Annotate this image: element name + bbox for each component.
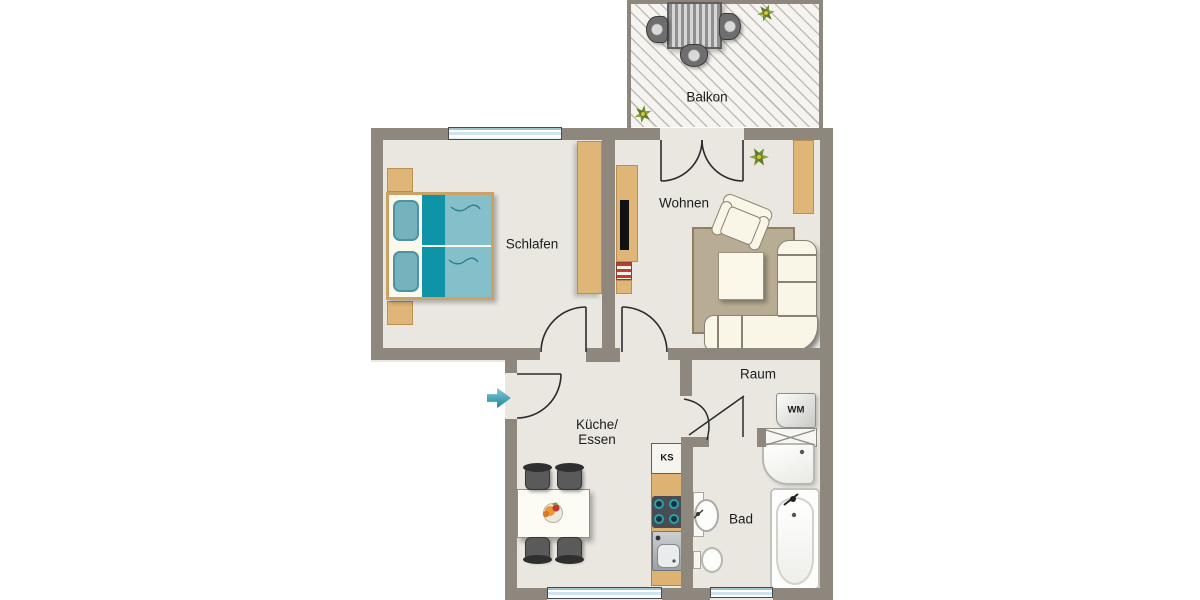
coffee-table [718,252,764,300]
sofa-seam [778,254,816,256]
wall-bottom-2 [662,588,710,600]
washing-machine-label: WM [788,405,805,416]
sofa-seam [778,315,816,317]
wall-kitchen-raum [680,358,692,396]
bed-pillow-bottom [393,251,419,292]
wall-bad-left [681,437,693,588]
wall-kitchen-left-top [505,348,517,373]
bed-divider [389,245,491,247]
balcony-label: Balkon [686,90,727,105]
bathtub-basin [776,497,814,585]
toilet-tank [693,551,701,569]
burner [654,499,664,509]
nightstand-top [387,168,413,192]
sofa-seam [778,281,816,283]
sofa-bottom-arm [704,315,818,352]
kitchen-sink-bowl [657,544,680,568]
kueche-label-line1: Küche/ [576,417,618,432]
bad-label: Bad [729,512,753,527]
fridge-label: KS [660,453,673,464]
double-bed [386,192,494,300]
burner [669,499,679,509]
bathtub [770,488,820,590]
fruit-bowl [543,503,563,523]
kueche-label: Küche/ Essen [576,417,618,447]
balcony-chair-right [719,13,741,40]
wall-top-mid [562,128,660,140]
window-schlafen [448,127,562,140]
sofa-seam [717,316,719,351]
kitchen-sink-unit [652,531,683,571]
wall-bottom-3 [773,588,833,600]
stove [652,496,683,528]
bed-pillow-top [393,200,419,241]
kueche-label-line2: Essen [576,432,618,447]
floor-plan: Balkon Schlafen Wohnen [0,0,1200,600]
window-kueche [547,587,662,599]
balcony-chair-bottom [680,44,708,67]
dining-chair-back [523,555,552,564]
balcony-table [667,2,722,49]
bath-sink [694,499,719,532]
nightstand-bottom [387,301,413,325]
balcony-railing-left [627,0,631,128]
toilet [701,547,723,573]
radiator [616,262,632,280]
burner [654,514,664,524]
burner [669,514,679,524]
dining-chair-back [523,463,552,472]
shelf-small [616,280,632,294]
window-bad [710,587,773,598]
dining-chair-back [555,555,584,564]
wall-left [371,128,383,360]
schlafen-label: Schlafen [506,237,559,252]
wall-kitchen-left-bottom [505,419,517,600]
wall-schlafen-wohnen [602,140,615,352]
sofa-seam [741,316,743,351]
balcony-railing-right [819,0,823,128]
wall-raum-bad-right [757,428,766,447]
wall-bottom-1 [505,588,547,600]
wardrobe-schlafen [577,141,602,294]
dining-chair-back [555,463,584,472]
wall-right [820,128,833,600]
tv [620,200,629,250]
raum-label: Raum [740,367,776,382]
wall-hall-right [668,348,833,360]
sideboard-wohnen-right [793,140,814,214]
balcony-railing-top [627,0,823,4]
balcony-chair-left [646,16,668,43]
wohnen-label: Wohnen [659,196,709,211]
wall-raum-bad-stub [681,437,709,447]
